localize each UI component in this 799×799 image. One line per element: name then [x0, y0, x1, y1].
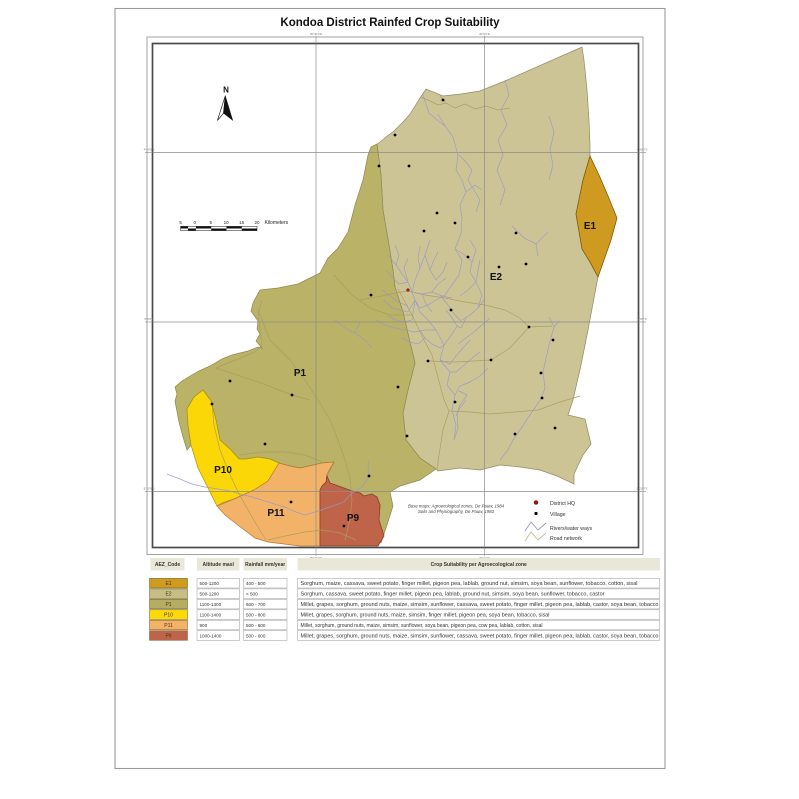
svg-text:500 - 600: 500 - 600 — [246, 633, 266, 638]
svg-text:P1: P1 — [294, 368, 307, 379]
svg-text:Base maps: Agroecological zone: Base maps: Agroecological zones, De Pauw… — [408, 504, 505, 509]
svg-text:4°40'0"S: 4°40'0"S — [144, 148, 155, 152]
svg-text:Road network: Road network — [550, 536, 582, 542]
svg-text:500 - 600: 500 - 600 — [246, 623, 266, 628]
svg-text:E1: E1 — [584, 221, 597, 232]
svg-text:Kondoa District Rainfed Crop S: Kondoa District Rainfed Crop Suitability — [280, 17, 500, 29]
svg-text:Millet, sorghum, ground nuts,: Millet, sorghum, ground nuts, maize, sim… — [301, 623, 543, 629]
svg-text:4°40'0"S: 4°40'0"S — [637, 148, 648, 152]
svg-text:E2: E2 — [165, 592, 171, 598]
svg-text:5°0'0"S: 5°0'0"S — [144, 317, 153, 321]
svg-text:5°20'0"S: 5°20'0"S — [637, 487, 648, 491]
svg-text:< 500: < 500 — [246, 592, 258, 597]
svg-text:5°0'0"S: 5°0'0"S — [637, 317, 646, 321]
svg-text:P10: P10 — [164, 613, 173, 619]
svg-text:Sorghum, cassava, sweet potato: Sorghum, cassava, sweet potato, finger m… — [301, 592, 605, 598]
svg-text:P11: P11 — [267, 508, 285, 519]
svg-text:E1: E1 — [165, 581, 171, 587]
svg-text:1100-1400: 1100-1400 — [200, 612, 222, 617]
svg-text:900: 900 — [200, 623, 208, 628]
svg-text:400 - 500: 400 - 500 — [246, 581, 266, 586]
svg-text:AEZ_Code: AEZ_Code — [155, 562, 181, 568]
svg-text:Soils and Physiography, De Pau: Soils and Physiography, De Pauw, 1983 — [418, 509, 495, 514]
svg-text:500-1200: 500-1200 — [200, 581, 220, 586]
svg-text:20: 20 — [254, 220, 260, 225]
svg-text:Rainfall mm/year: Rainfall mm/year — [245, 562, 285, 568]
svg-text:P1: P1 — [165, 602, 171, 608]
svg-text:E2: E2 — [490, 272, 503, 283]
svg-text:600 - 700: 600 - 700 — [246, 602, 266, 607]
svg-text:P9: P9 — [165, 634, 171, 640]
svg-text:Millet, grapes, sorghum, groun: Millet, grapes, sorghum, ground nuts, ma… — [301, 633, 659, 639]
svg-text:Millet, grapes, sorghum, groun: Millet, grapes, sorghum, ground nuts, ma… — [301, 612, 550, 618]
svg-text:36°0'0"E: 36°0'0"E — [479, 32, 490, 36]
svg-text:P10: P10 — [214, 465, 232, 476]
svg-text:Rivers/water ways: Rivers/water ways — [550, 526, 592, 532]
svg-text:1100-1300: 1100-1300 — [200, 602, 222, 607]
svg-text:Village: Village — [550, 512, 566, 518]
svg-text:P11: P11 — [164, 623, 173, 629]
svg-text:5°20'0"S: 5°20'0"S — [144, 487, 155, 491]
svg-text:10: 10 — [224, 220, 230, 225]
svg-text:P9: P9 — [347, 513, 360, 524]
svg-text:15: 15 — [239, 220, 245, 225]
svg-text:Sorghum, maize, cassava, sweet: Sorghum, maize, cassava, sweet potato, f… — [301, 581, 638, 587]
svg-text:1000-1400: 1000-1400 — [200, 633, 222, 638]
svg-text:Kilometers: Kilometers — [265, 220, 289, 226]
svg-text:35°40'0"E: 35°40'0"E — [310, 32, 322, 36]
svg-text:500 - 800: 500 - 800 — [246, 612, 266, 617]
svg-text:Crop Suitability per Agroecolo: Crop Suitability per Agroecological zone — [431, 562, 527, 568]
svg-text:N: N — [223, 86, 229, 95]
svg-text:Altitude masl: Altitude masl — [202, 562, 234, 568]
svg-text:District HQ: District HQ — [550, 501, 575, 507]
svg-text:Millet, grapes, sorghum, groun: Millet, grapes, sorghum, ground nuts, ma… — [301, 602, 659, 608]
svg-text:500-1200: 500-1200 — [200, 592, 220, 597]
